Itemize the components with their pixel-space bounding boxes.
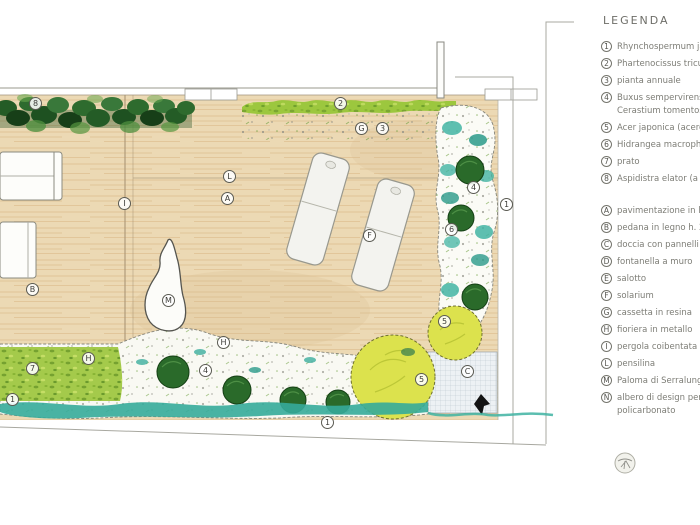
- legend-item-letter: B: [601, 222, 612, 233]
- plan-label: 2: [334, 97, 347, 110]
- legend-item-label-line2: policarbonato: [617, 406, 700, 417]
- legend-item-number: 2: [601, 58, 612, 69]
- plan-label: 6: [445, 223, 458, 236]
- studio-logo: [612, 450, 638, 476]
- legend-item-letter: N: [601, 392, 612, 403]
- shower-area: [428, 352, 497, 415]
- legend-item: 4 Buxus sempervirens (: [601, 92, 700, 104]
- acer-tree-upper: [428, 306, 482, 360]
- plan-label: F: [363, 229, 376, 242]
- plan-drawing: [0, 0, 590, 525]
- legend-item-label: cassetta in resina: [617, 307, 692, 319]
- plan-label: H: [82, 352, 95, 365]
- legend-item-label: pavimentazione in leg: [617, 205, 700, 217]
- plan-label: 5: [438, 315, 451, 328]
- legend-item: 8 Aspidistra elator (a: [601, 173, 700, 185]
- legend-item: A pavimentazione in leg: [601, 205, 700, 217]
- plan-label: L: [223, 170, 236, 183]
- legend-item-number: 3: [601, 75, 612, 86]
- legend-item: N albero di design per: [601, 392, 700, 404]
- legend-item: 6 Hidrangea macrophil: [601, 139, 700, 151]
- legend: LEGENDA 1 Rhynchospermum jas 2 Phartenoc…: [601, 14, 700, 422]
- legend-item-letter: C: [601, 239, 612, 250]
- legend-item: B pedana in legno h. 2: [601, 222, 700, 234]
- legend-item-letter: L: [601, 358, 612, 369]
- legend-item-letter: D: [601, 256, 612, 267]
- legend-item-label: fontanella a muro: [617, 256, 692, 268]
- legend-item-label: pedana in legno h. 2: [617, 222, 700, 234]
- plan-label: 1: [6, 393, 19, 406]
- plan-label: 5: [415, 373, 428, 386]
- legend-item-label-line2: Cerastium tomentos: [617, 106, 700, 117]
- legend-item: F solarium: [601, 290, 700, 302]
- legend-item: D fontanella a muro: [601, 256, 700, 268]
- legend-item-label: doccia con pannelli a: [617, 239, 700, 251]
- plan-label: I: [118, 197, 131, 210]
- legend-item-label: prato: [617, 156, 640, 168]
- plan-label: 8: [29, 97, 42, 110]
- legend-elements: A pavimentazione in leg B pedana in legn…: [601, 205, 700, 417]
- plan-label: G: [355, 122, 368, 135]
- legend-item-label: Paloma di Serralunga: [617, 375, 700, 387]
- legend-item-label: Buxus sempervirens (: [617, 92, 700, 104]
- legend-item-label: pensilina: [617, 358, 655, 370]
- legend-title: LEGENDA: [603, 14, 700, 27]
- legend-item-number: 1: [601, 41, 612, 52]
- plan-label: M: [162, 294, 175, 307]
- legend-item: 2 Phartenocissus tricus: [601, 58, 700, 70]
- legend-item-label: pianta annuale: [617, 75, 681, 87]
- top-planting-strip: [240, 100, 456, 141]
- legend-item: G cassetta in resina: [601, 307, 700, 319]
- plan-label: 4: [199, 364, 212, 377]
- legend-item-label: Aspidistra elator (a: [617, 173, 698, 185]
- legend-plants: 1 Rhynchospermum jas 2 Phartenocissus tr…: [601, 41, 700, 185]
- legend-item-label: Hidrangea macrophil: [617, 139, 700, 151]
- plan-label: B: [26, 283, 39, 296]
- legend-item-number: 4: [601, 92, 612, 103]
- legend-item-label: fioriera in metallo: [617, 324, 692, 336]
- legend-item: M Paloma di Serralunga: [601, 375, 700, 387]
- plan-label: A: [221, 192, 234, 205]
- legend-item: L pensilina: [601, 358, 700, 370]
- legend-item-label: Rhynchospermum jas: [617, 41, 700, 53]
- legend-item-label: Acer japonica (acero: [617, 122, 700, 134]
- legend-item-number: 6: [601, 139, 612, 150]
- legend-item-letter: I: [601, 341, 612, 352]
- legend-item-number: 5: [601, 122, 612, 133]
- legend-item: H fioriera in metallo: [601, 324, 700, 336]
- legend-item-letter: F: [601, 290, 612, 301]
- legend-item: I pergola coibentata: [601, 341, 700, 353]
- legend-item-label: pergola coibentata: [617, 341, 697, 353]
- plan-label: H: [217, 336, 230, 349]
- legend-item: 3 pianta annuale: [601, 75, 700, 87]
- legend-item-label: albero di design per: [617, 392, 700, 404]
- legend-item: 7 prato: [601, 156, 700, 168]
- legend-item-label: solarium: [617, 290, 654, 302]
- legend-item: 1 Rhynchospermum jas: [601, 41, 700, 53]
- plan-label: 3: [376, 122, 389, 135]
- legend-item-letter: A: [601, 205, 612, 216]
- legend-item: 5 Acer japonica (acero: [601, 122, 700, 134]
- legend-item-letter: E: [601, 273, 612, 284]
- plan-label: 7: [26, 362, 39, 375]
- plan-label: 4: [467, 181, 480, 194]
- garden-plan-sheet: 8 2 G 3 L A I F 4 1 6 B M 7 H 1 H 4 1 5 …: [0, 0, 700, 525]
- legend-item-letter: G: [601, 307, 612, 318]
- legend-item-number: 7: [601, 156, 612, 167]
- legend-item-label: Phartenocissus tricus: [617, 58, 700, 70]
- legend-item-letter: M: [601, 375, 612, 386]
- legend-item-label: salotto: [617, 273, 646, 285]
- legend-item: C doccia con pannelli a: [601, 239, 700, 251]
- legend-item: E salotto: [601, 273, 700, 285]
- plan-label: C: [461, 365, 474, 378]
- legend-item-letter: H: [601, 324, 612, 335]
- plan-label: 1: [500, 198, 513, 211]
- plan-label: 1: [321, 416, 334, 429]
- legend-item-number: 8: [601, 173, 612, 184]
